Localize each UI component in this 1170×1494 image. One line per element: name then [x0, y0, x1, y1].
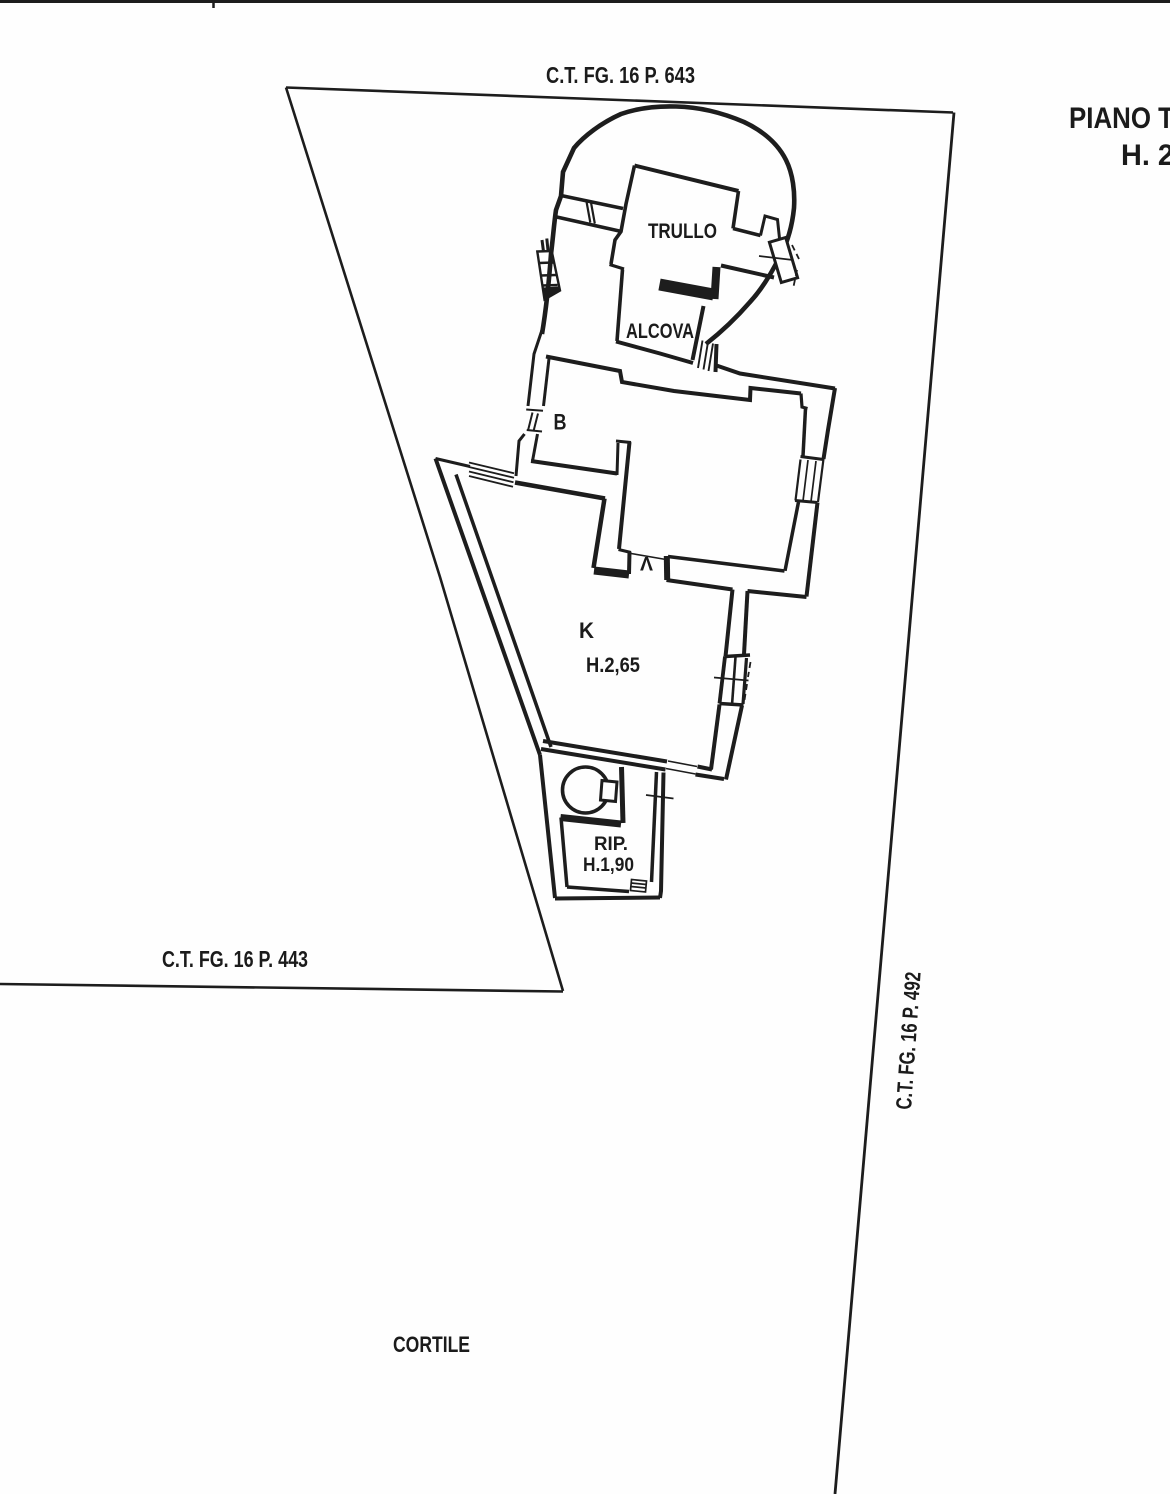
svg-text:B: B: [554, 410, 567, 435]
svg-text:CORTILE: CORTILE: [393, 1332, 470, 1357]
svg-text:C.T. FG. 16 P. 492: C.T. FG. 16 P. 492: [891, 971, 926, 1110]
svg-text:Λ: Λ: [640, 555, 653, 576]
svg-text:H.2,65: H.2,65: [586, 654, 640, 677]
svg-text:C.T. FG. 16 P. 643: C.T. FG. 16 P. 643: [546, 62, 695, 88]
svg-text:RIP.: RIP.: [594, 834, 628, 855]
svg-text:PIANO T: PIANO T: [1069, 102, 1170, 135]
svg-text:C.T. FG. 16 P. 443: C.T. FG. 16 P. 443: [162, 946, 308, 972]
svg-text:K: K: [579, 618, 594, 643]
svg-text:H. 2: H. 2: [1121, 139, 1170, 172]
svg-text:TRULLO: TRULLO: [648, 220, 717, 243]
svg-text:H.1,90: H.1,90: [583, 855, 634, 876]
svg-text:ALCOVA: ALCOVA: [626, 320, 694, 343]
